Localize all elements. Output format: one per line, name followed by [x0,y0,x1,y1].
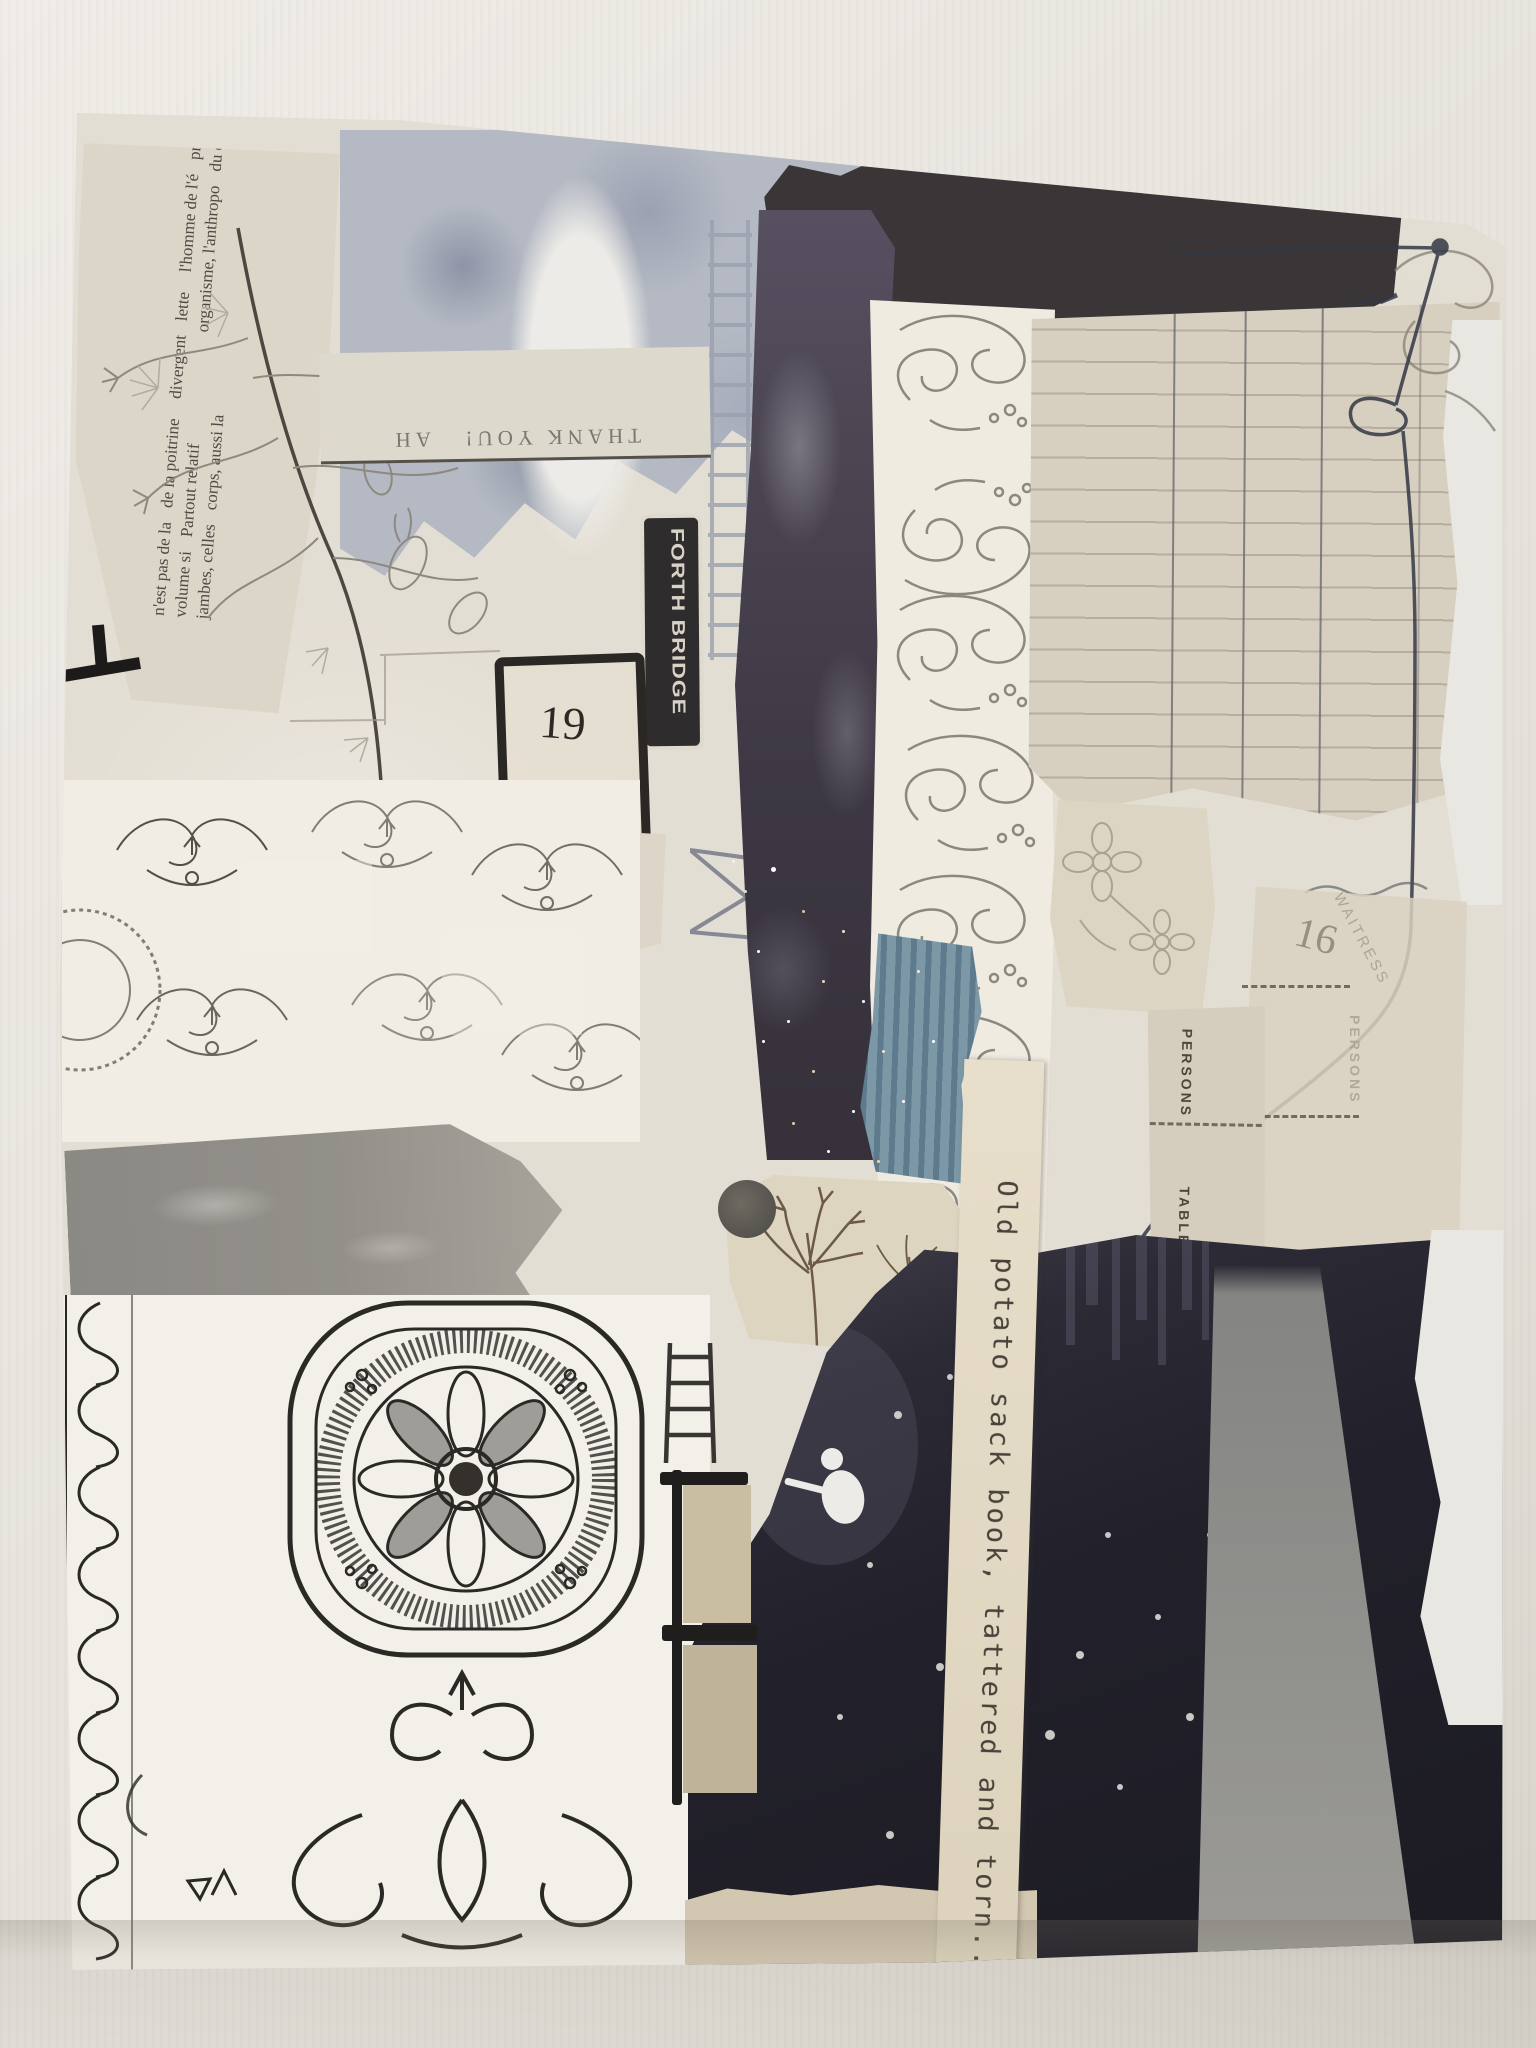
medallion-pattern [62,1295,710,1970]
potato-phrase: Old potato sack book, tattered and torn.… [966,1180,1022,1970]
persons-label: PERSONS [1178,1029,1196,1119]
tape-square [683,1485,751,1623]
flower-sketch-scrap [1050,800,1215,1015]
persons-label-faded: PERSONS [1347,1015,1363,1104]
table-label: TABLE [1176,1186,1193,1247]
damask-motifs [62,780,640,1142]
forth-bridge-label: FORTH BRIDGE [644,518,700,746]
pad-dashed-rule [1150,1122,1262,1127]
number-19: 19 [538,695,588,751]
wallpaper-medallion-panel [62,1295,710,1970]
wallpaper-damask-upper [62,780,640,1142]
black-mark-left-edge [58,615,208,815]
glitter-speckles [732,860,735,863]
ladder-drawing [660,1343,722,1463]
tape-square [683,1645,757,1793]
collage-artwork-board: n'est pas de lade la poitrine divergentl… [55,113,1505,1970]
wall-background: n'est pas de lade la poitrine divergentl… [0,0,1536,2048]
dark-circle-sticker [718,1180,776,1238]
forth-bridge-text: FORTH BRIDGE [666,528,689,715]
pad-dashed-rule [1242,985,1350,988]
tape-frame-stroke [662,1625,757,1641]
flower-sketch-drawing [1050,800,1215,1015]
